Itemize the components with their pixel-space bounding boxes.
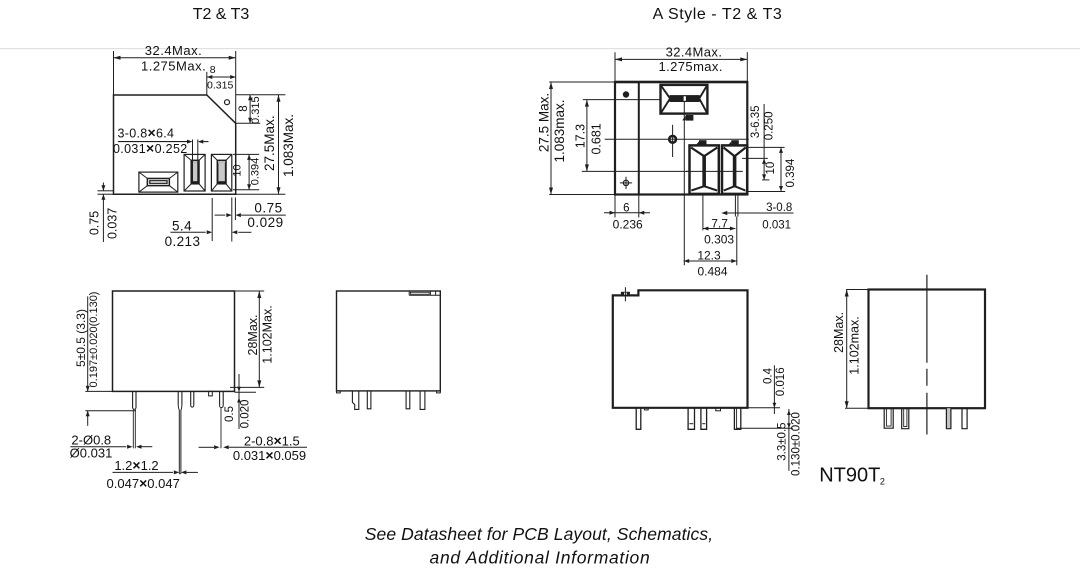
- svg-text:A Style - T2 & T3: A Style - T2 & T3: [653, 6, 783, 23]
- svg-text:0.031×0.059: 0.031×0.059: [233, 447, 306, 463]
- svg-text:1.275max.: 1.275max.: [659, 59, 723, 74]
- svg-text:0.016: 0.016: [775, 367, 787, 396]
- svg-text:0.681: 0.681: [589, 123, 603, 154]
- svg-text:and Additional Information: and Additional Information: [430, 548, 651, 568]
- svg-text:5±0.5 (3.3): 5±0.5 (3.3): [74, 309, 88, 367]
- svg-text:10: 10: [765, 162, 777, 175]
- svg-text:12.3: 12.3: [697, 248, 721, 262]
- svg-text:1.2×1.2: 1.2×1.2: [114, 457, 158, 473]
- svg-text:0.4: 0.4: [762, 367, 774, 384]
- svg-text:1.102max.: 1.102max.: [848, 316, 862, 374]
- svg-text:1.083Max.: 1.083Max.: [281, 114, 296, 177]
- svg-text:0.031: 0.031: [762, 219, 791, 231]
- svg-text:0.031×0.252: 0.031×0.252: [113, 140, 188, 156]
- svg-text:0.213: 0.213: [165, 234, 201, 249]
- svg-text:0.75: 0.75: [254, 201, 282, 216]
- svg-text:3-6.35: 3-6.35: [750, 105, 762, 138]
- svg-text:17.3: 17.3: [573, 124, 587, 148]
- svg-text:0.197±0.020(0.130): 0.197±0.020(0.130): [88, 292, 100, 388]
- svg-text:3-0.8×6.4: 3-0.8×6.4: [118, 124, 175, 140]
- svg-text:7.7: 7.7: [711, 216, 728, 230]
- svg-text:0.236: 0.236: [613, 217, 643, 231]
- svg-text:27.5Max.: 27.5Max.: [262, 115, 277, 171]
- svg-text:0.484: 0.484: [697, 265, 727, 279]
- svg-text:27.5 Max.: 27.5 Max.: [537, 93, 552, 152]
- svg-text:0.037: 0.037: [105, 208, 119, 239]
- svg-text:2-0.8×1.5: 2-0.8×1.5: [244, 432, 300, 448]
- svg-text:1.083max.: 1.083max.: [552, 99, 567, 162]
- svg-text:Ø0.031: Ø0.031: [70, 446, 113, 461]
- svg-text:10: 10: [231, 164, 243, 176]
- svg-text:5.4: 5.4: [172, 219, 192, 234]
- svg-text:32.4Max.: 32.4Max.: [145, 43, 202, 58]
- svg-text:0.130±0.020: 0.130±0.020: [790, 412, 802, 476]
- svg-text:1.275Max.: 1.275Max.: [141, 58, 206, 73]
- svg-text:6: 6: [623, 203, 629, 215]
- svg-text:3.3±0.5: 3.3±0.5: [777, 422, 789, 460]
- svg-text:1.102Max.: 1.102Max.: [261, 305, 275, 363]
- svg-text:3-0.8: 3-0.8: [766, 202, 792, 214]
- svg-text:0.303: 0.303: [704, 233, 734, 247]
- svg-text:0.394: 0.394: [249, 158, 261, 186]
- svg-text:0.75: 0.75: [88, 211, 102, 235]
- svg-text:32.4Max.: 32.4Max.: [666, 45, 723, 60]
- svg-text:8: 8: [210, 64, 216, 76]
- svg-text:0.047×0.047: 0.047×0.047: [107, 475, 180, 491]
- svg-text:28Max.: 28Max.: [246, 315, 260, 356]
- svg-text:0.5: 0.5: [224, 406, 236, 422]
- svg-text:T2 & T3: T2 & T3: [193, 6, 250, 23]
- svg-text:0.250: 0.250: [764, 112, 776, 141]
- svg-text:See Datasheet for PCB Layout,: See Datasheet for PCB Layout, Schematics…: [365, 524, 713, 544]
- svg-text:28Max.: 28Max.: [832, 312, 846, 353]
- svg-text:NT90T: NT90T: [819, 465, 880, 487]
- svg-text:0.029: 0.029: [247, 215, 283, 230]
- svg-text:0.315: 0.315: [207, 79, 233, 91]
- svg-text:0.315: 0.315: [250, 96, 262, 124]
- svg-text:0.020: 0.020: [240, 400, 252, 429]
- svg-text:8: 8: [238, 105, 250, 111]
- svg-text:0.394: 0.394: [785, 158, 797, 187]
- svg-text:2: 2: [880, 477, 885, 487]
